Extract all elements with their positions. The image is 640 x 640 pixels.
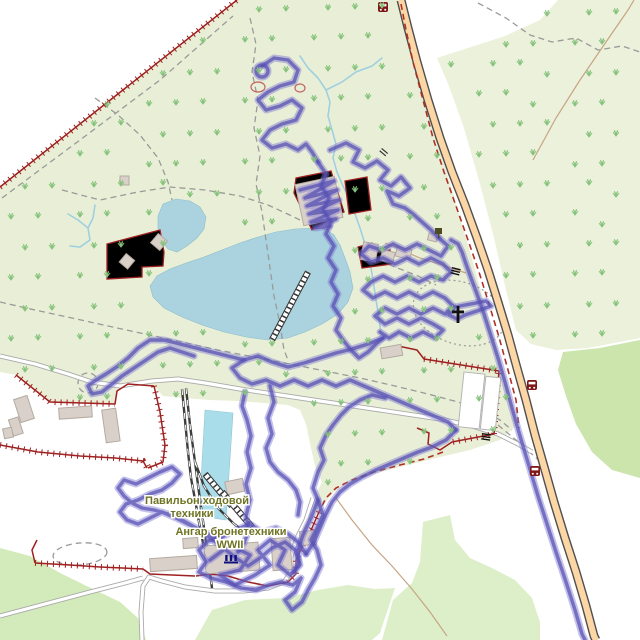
bus-stop-icon[interactable] bbox=[527, 380, 537, 390]
map-canvas[interactable]: Павильон ходовой техники Ангар бронетехн… bbox=[0, 0, 640, 640]
pavilion-label-line2: техники bbox=[170, 508, 213, 520]
hangar-label-line2: WWII bbox=[217, 539, 244, 551]
hangar-label-line1: Ангар бронетехники bbox=[175, 526, 286, 538]
gate-icon[interactable] bbox=[481, 433, 491, 441]
bus-stop-icon[interactable] bbox=[530, 466, 540, 476]
pavilion-label-line1: Павильон ходовой bbox=[145, 495, 249, 507]
map-svg[interactable]: Павильон ходовой техники Ангар бронетехн… bbox=[0, 0, 640, 640]
